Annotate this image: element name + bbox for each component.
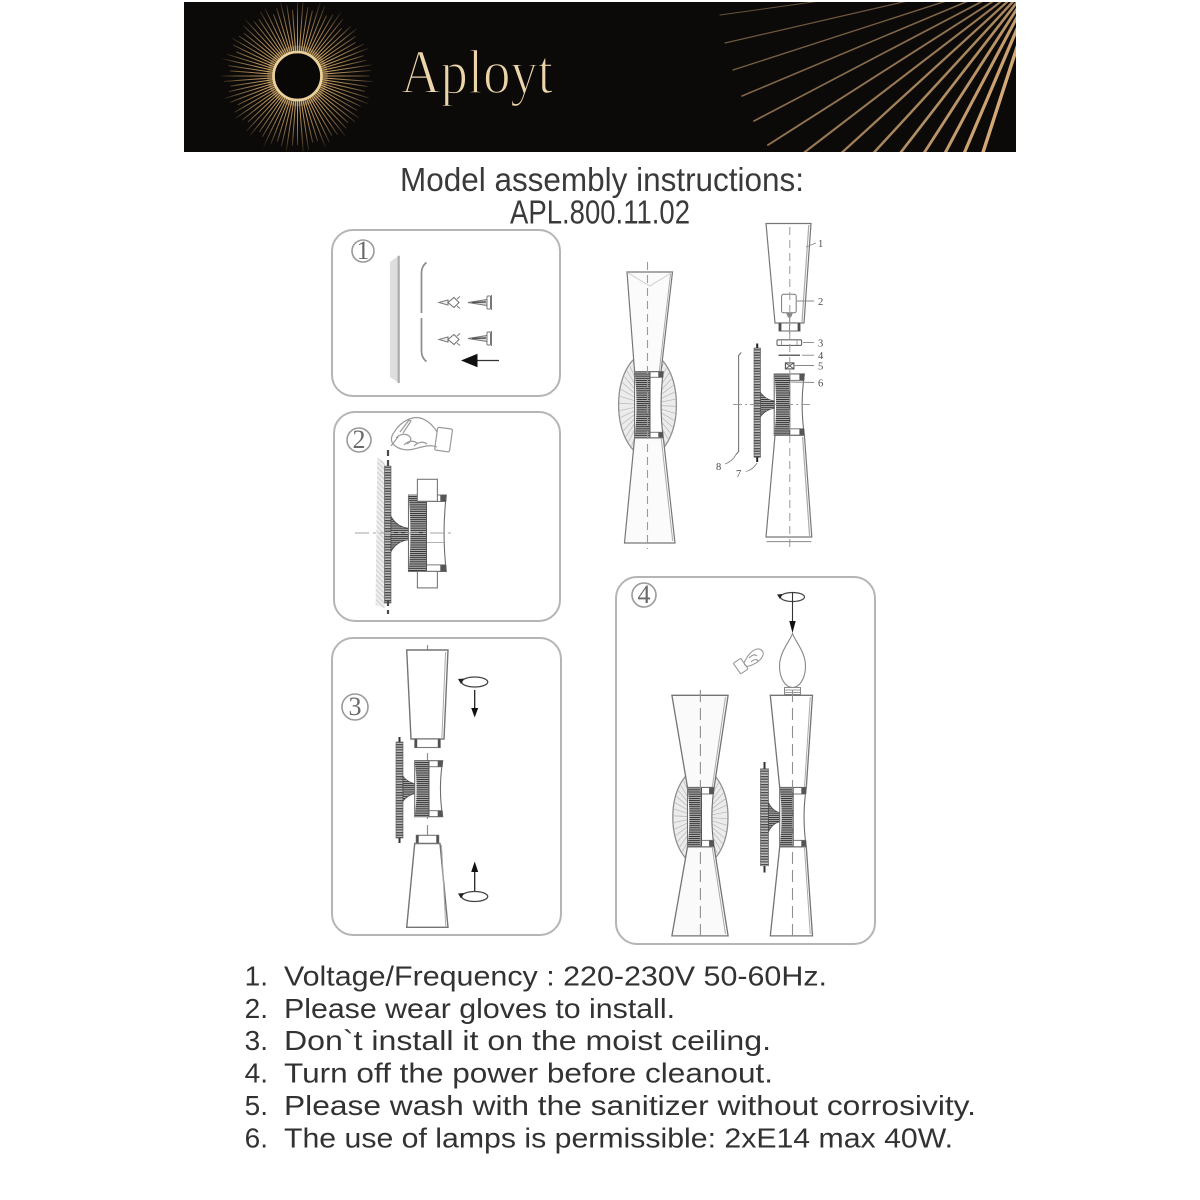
svg-text:6: 6	[818, 379, 823, 390]
svg-text:6.: 6.	[245, 1122, 268, 1153]
svg-text:1: 1	[818, 239, 823, 250]
svg-text:8: 8	[716, 462, 721, 473]
svg-text:2: 2	[353, 425, 366, 454]
svg-text:1.: 1.	[245, 960, 268, 991]
svg-text:Please wash with the sanitizer: Please wash with the sanitizer without c…	[284, 1090, 976, 1121]
svg-text:APL.800.11.02: APL.800.11.02	[510, 194, 690, 231]
svg-text:3.: 3.	[245, 1025, 268, 1056]
svg-text:7: 7	[736, 469, 741, 480]
svg-text:Aployt: Aployt	[401, 39, 553, 107]
svg-text:5.: 5.	[245, 1090, 268, 1121]
svg-text:2.: 2.	[245, 993, 268, 1024]
svg-text:3: 3	[349, 692, 362, 721]
svg-text:Don`t install it on the moist: Don`t install it on the moist ceiling.	[284, 1025, 771, 1056]
svg-text:4.: 4.	[245, 1058, 268, 1089]
svg-text:Please wear gloves to install.: Please wear gloves to install.	[284, 993, 675, 1024]
svg-text:4: 4	[638, 580, 651, 609]
svg-text:The use of lamps is permissibl: The use of lamps is permissible: 2xE14 m…	[284, 1122, 953, 1153]
svg-text:2: 2	[818, 297, 823, 308]
svg-text:3: 3	[818, 339, 823, 350]
svg-text:Model assembly instructions:: Model assembly instructions:	[400, 161, 804, 198]
svg-text:1: 1	[357, 236, 370, 265]
svg-text:Voltage/Frequency : 220-230V 5: Voltage/Frequency : 220-230V 50-60Hz.	[284, 960, 827, 991]
svg-text:5: 5	[818, 362, 823, 373]
svg-text:Turn off the power before clea: Turn off the power before cleanout.	[284, 1058, 773, 1089]
